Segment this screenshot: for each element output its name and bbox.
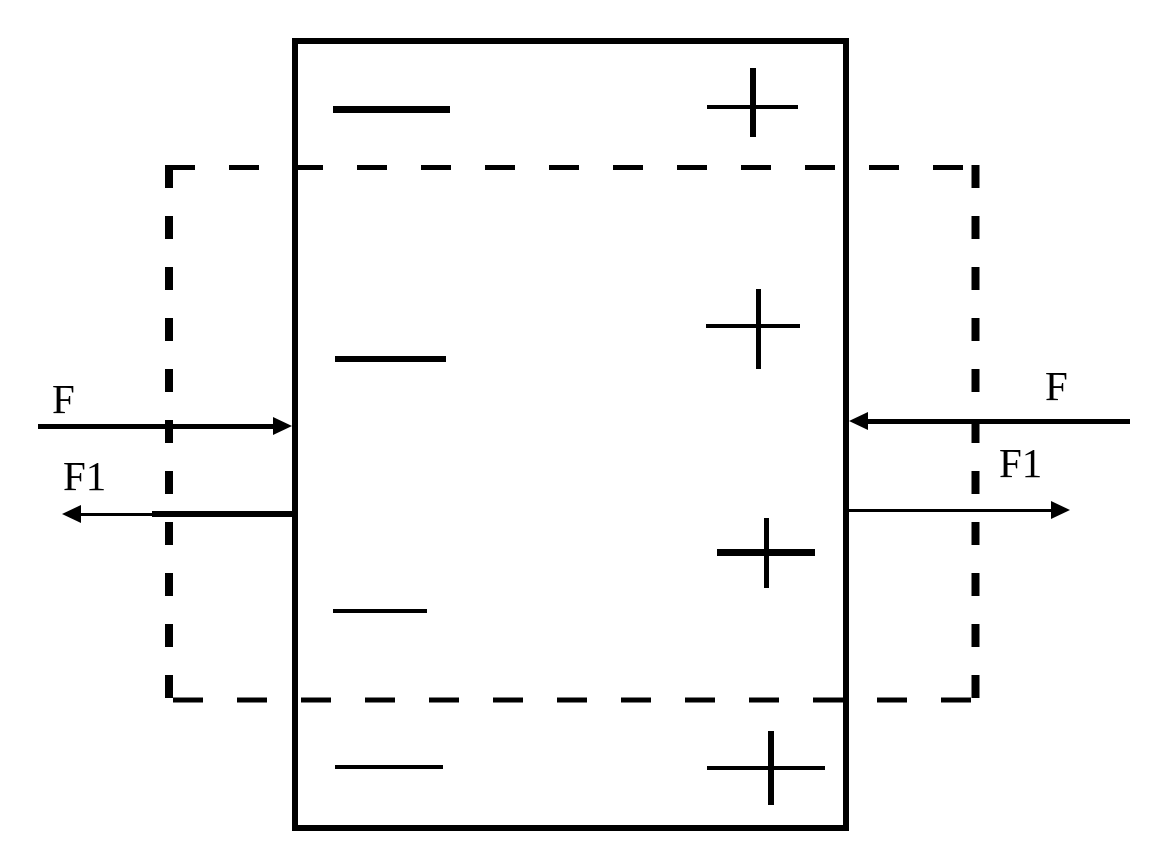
diagram-canvas: F F1 F F1	[0, 0, 1152, 864]
force-arrow-right_f-head	[849, 412, 868, 430]
force-label-f1-right: F1	[999, 443, 1042, 484]
diagram-outlines	[0, 0, 1152, 864]
plus-charge-symbol-vbar	[764, 518, 769, 588]
force-label-f1-left: F1	[63, 456, 106, 497]
plus-charge-symbol-hbar	[706, 324, 800, 328]
force-arrow-right_f1-head	[1051, 501, 1070, 519]
force-label-f-left: F	[52, 379, 75, 420]
minus-charge-symbol	[333, 609, 427, 613]
force-arrow-left_f1-line	[152, 511, 293, 517]
force-label-f-right: F	[1045, 366, 1068, 407]
force-arrow-left_f1-line	[80, 513, 155, 516]
minus-charge-symbol	[335, 356, 446, 362]
plus-charge-symbol-vbar	[768, 731, 774, 805]
plus-charge-symbol-vbar	[756, 289, 761, 369]
force-arrow-right_f-line	[866, 419, 1130, 424]
minus-charge-symbol	[333, 106, 450, 113]
force-arrow-left_f1-head	[62, 505, 81, 523]
plus-charge-symbol-hbar	[707, 766, 825, 770]
solid-box-outline	[295, 41, 846, 828]
plus-charge-symbol-vbar	[750, 68, 756, 137]
force-arrow-left_f-line	[38, 424, 276, 429]
minus-charge-symbol	[335, 765, 443, 769]
force-arrow-right_f1-line	[848, 509, 1054, 512]
force-arrow-left_f-head	[273, 417, 292, 435]
